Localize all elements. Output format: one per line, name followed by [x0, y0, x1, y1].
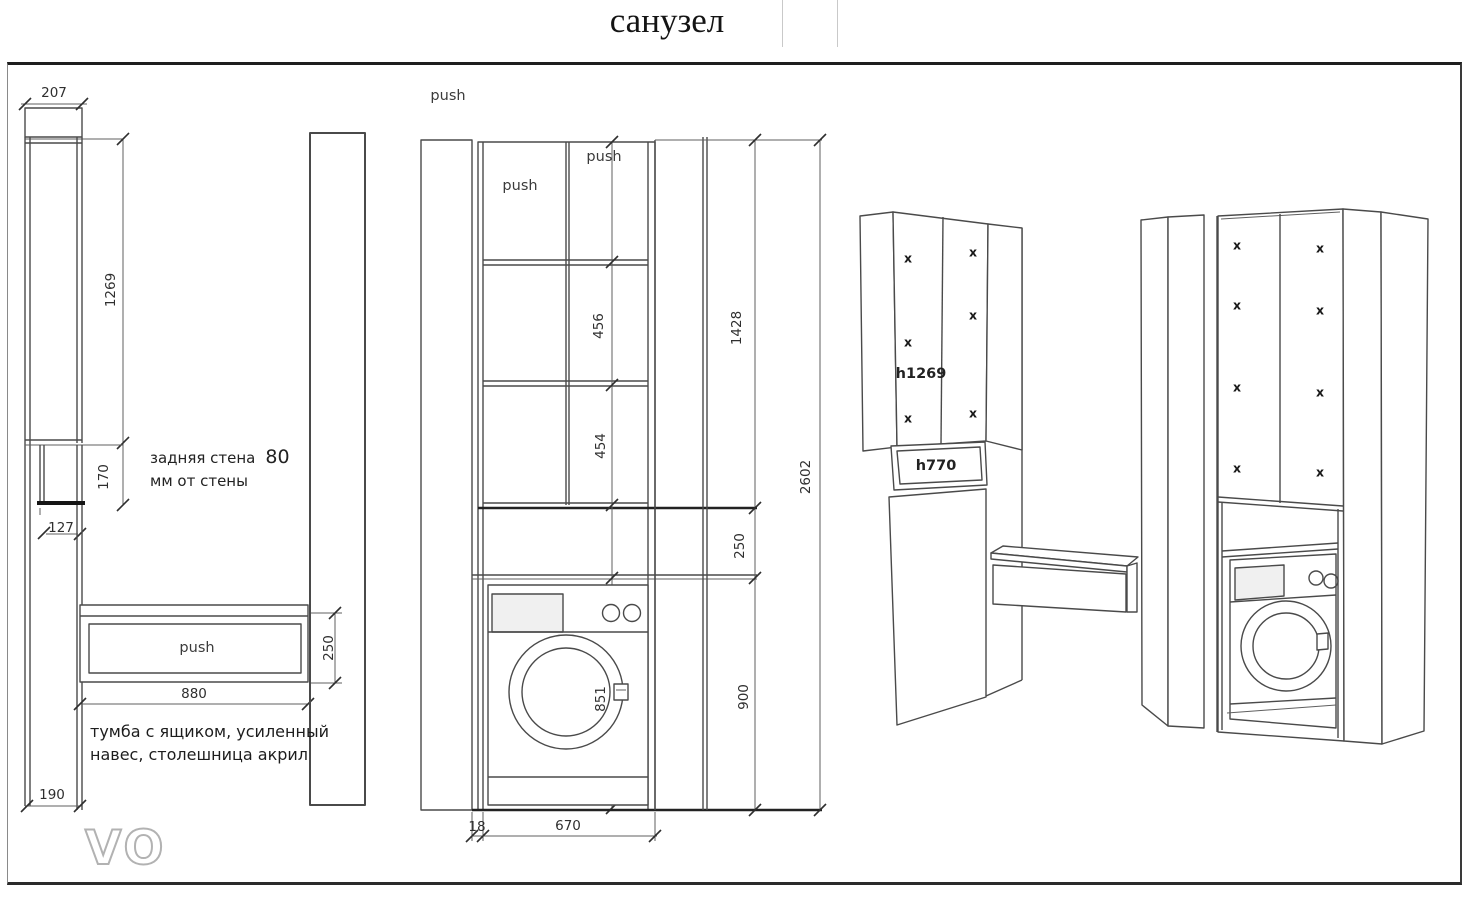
wall-panel [310, 133, 365, 805]
logo-e-bar [54, 844, 85, 854]
logo-e-bar [54, 861, 85, 871]
x-mark: x [969, 308, 977, 323]
x-mark: x [1233, 380, 1241, 395]
x-mark: x [1316, 303, 1324, 318]
washer-door-handle [614, 684, 628, 700]
dim-456: 456 [591, 313, 607, 339]
iso-view-left [860, 212, 1138, 725]
x-mark: x [1316, 241, 1324, 256]
washing-machine-iso [1227, 554, 1338, 728]
x-mark: x [904, 335, 912, 350]
x-mark: x [1233, 238, 1241, 253]
dim-1269: 1269 [103, 273, 119, 307]
iso-vanity [991, 546, 1138, 612]
dim-454: 454 [593, 433, 609, 459]
drawing-sheet: санузел [0, 0, 1470, 900]
x-mark: x [904, 411, 912, 426]
dim-18: 18 [468, 819, 485, 835]
evo-logo [25, 810, 85, 879]
dim-250-side: 250 [321, 635, 337, 661]
washing-machine-front [488, 585, 648, 805]
dim-851: 851 [593, 686, 609, 712]
dim-190: 190 [39, 787, 65, 803]
washer-display [492, 594, 563, 632]
x-mark: x [1316, 385, 1324, 400]
dim-670: 670 [555, 818, 581, 834]
dim-900: 900 [736, 684, 752, 710]
note-vanity-1: тумба с ящиком, усиленный [90, 722, 329, 741]
dim-1428: 1428 [729, 311, 745, 345]
x-mark: x [1316, 465, 1324, 480]
push-label: push [179, 640, 214, 656]
push-label: push [586, 149, 621, 165]
dim-2602: 2602 [798, 460, 814, 494]
note-back-wall-value: 80 [265, 446, 289, 468]
dim-127: 127 [48, 520, 74, 536]
note-back-wall-2: мм от стены [150, 472, 248, 490]
note-vanity-2: навес, столешница акрил [90, 745, 308, 764]
push-label: push [502, 178, 537, 194]
dim-880: 880 [181, 686, 207, 702]
front-view [421, 134, 826, 842]
logo-vo-text: VO [85, 821, 167, 876]
x-mark: x [1233, 298, 1241, 313]
dim-170: 170 [96, 464, 112, 490]
note-back-wall-text: задняя стена [150, 449, 255, 467]
dim-250-front: 250 [732, 533, 748, 559]
x-mark: x [904, 251, 912, 266]
logo-e-bar [54, 827, 85, 837]
x-mark: x [1233, 461, 1241, 476]
note-back-wall: задняя стена80 [150, 446, 290, 468]
label-h1269: h1269 [896, 366, 947, 382]
washer-door-handle [1317, 633, 1328, 650]
x-mark: x [969, 406, 977, 421]
label-h770: h770 [916, 458, 957, 474]
dim-207: 207 [41, 85, 67, 101]
iso-view-right [1141, 209, 1428, 744]
push-label: push [430, 88, 465, 104]
x-mark: x [969, 245, 977, 260]
logo-hexagon [25, 810, 82, 879]
